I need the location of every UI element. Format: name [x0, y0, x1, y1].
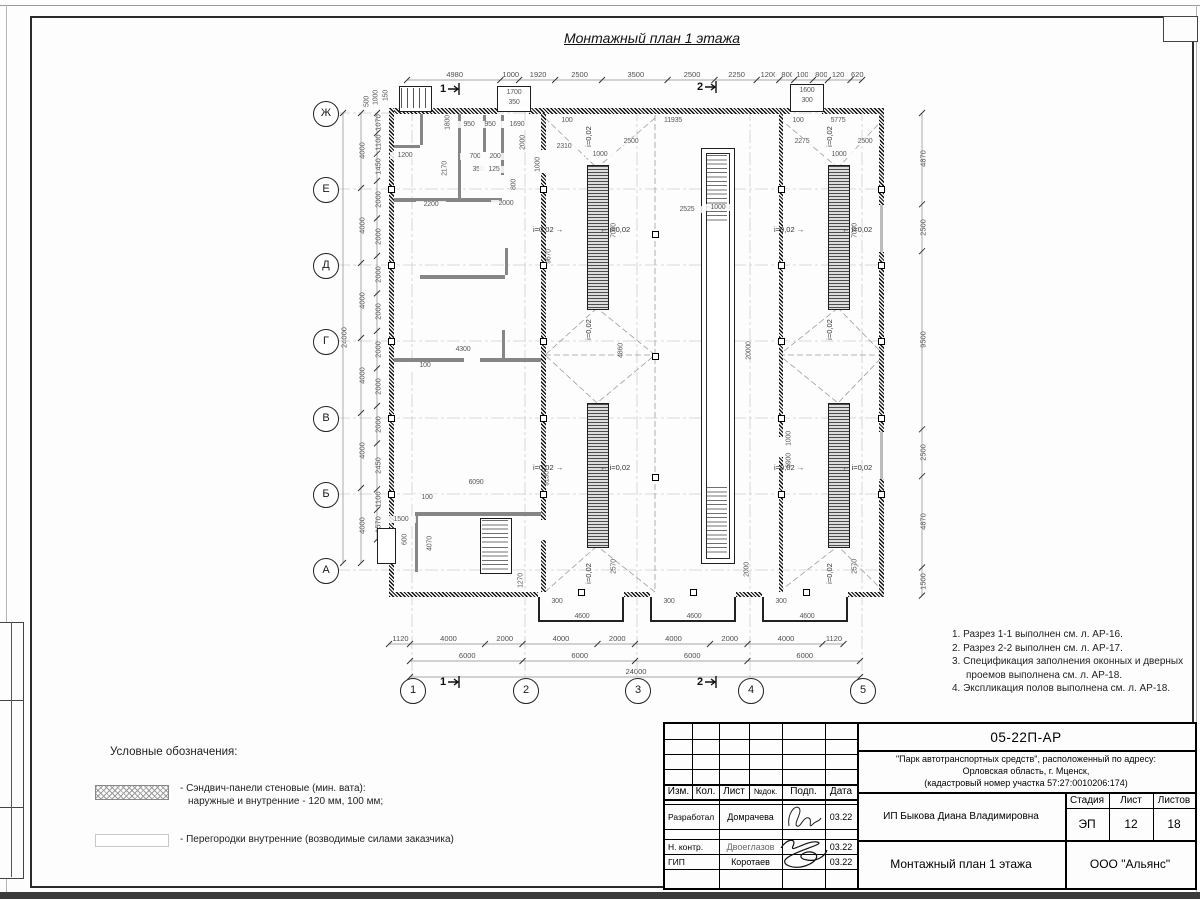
partition-wall [505, 248, 508, 275]
stamp-sheets-label: Листов [1153, 792, 1195, 808]
sandwich-panel-wall [541, 113, 546, 150]
dim-label: 125 [479, 166, 509, 173]
dim-label: 4600 [792, 613, 822, 620]
note-line: 4. Экспликация полов выполнена см. л. АР… [952, 682, 1200, 696]
section-mark: 1 [440, 675, 463, 689]
drawing-sheet: { "sheet": { "title": "Монтажный план 1 … [0, 0, 1200, 900]
sandwich-panel-wall [779, 113, 783, 437]
axis-bubble-row: Д [313, 253, 339, 279]
plan-outline [377, 528, 396, 564]
legend-swatch-sandwich-panel [95, 785, 169, 800]
column-marker [878, 338, 885, 345]
stair-treads [401, 88, 428, 108]
column-marker [540, 338, 547, 345]
note-line: 2. Разрез 2-2 выполнен см. л. АР-17. [952, 642, 1200, 656]
axis-bubble-col: 3 [625, 678, 651, 704]
axis-bubble-col: 4 [738, 678, 764, 704]
axis-bubble-col: 2 [513, 678, 539, 704]
dim-label: 2275 [787, 138, 817, 145]
sandwich-panel-wall [624, 592, 650, 597]
section-number: 1 [440, 83, 446, 95]
dim-label: 4070 [427, 529, 434, 559]
column-marker [778, 491, 785, 498]
partition-wall [420, 113, 423, 145]
stamp-name-ncontrol: Двоеглазов [719, 839, 782, 854]
sandwich-panel-wall [822, 108, 884, 114]
dim-label: 300 [542, 598, 572, 605]
dim-label: 150 [383, 81, 390, 111]
axis-bubble-col: 5 [850, 678, 876, 704]
stair-treads [482, 520, 508, 543]
stamp-stage-value: ЭП [1065, 808, 1109, 840]
stamp-client: ИП Быкова Диана Владимировна [857, 792, 1065, 840]
legend-line: наружные и внутренние - 120 мм, 100 мм; [180, 796, 480, 809]
dim-label: 350 [499, 99, 529, 106]
apron-line [622, 597, 624, 622]
apron-line [650, 597, 652, 622]
section-mark: 2 [697, 675, 720, 689]
slope-label: ← i=0,02 [600, 463, 630, 472]
dim-label: 300 [766, 598, 796, 605]
column-marker [690, 589, 697, 596]
column-marker [652, 474, 659, 481]
dim-label: 2310 [549, 143, 579, 150]
stamp-doc-code: 05-22П-АР [857, 724, 1195, 750]
ramp-strip [828, 403, 850, 548]
partition-wall [420, 275, 505, 279]
apron-line [538, 620, 624, 622]
project-line: (кадастровый номер участка 57:27:0010206… [924, 777, 1128, 789]
slope-label: i=0,02 [825, 319, 834, 340]
stamp-sheets-value: 18 [1153, 808, 1195, 840]
stamp-project: "Парк автотранспортных средств", располо… [857, 750, 1195, 792]
stamp-col-podp: Подп. [782, 784, 825, 799]
slope-label: ← i=0,02 [600, 225, 630, 234]
column-marker [652, 353, 659, 360]
stair-treads [707, 155, 727, 224]
stamp-org: ООО "Альянс" [1065, 840, 1195, 888]
sandwich-panel-wall [848, 592, 884, 597]
dim-label: 950 [475, 121, 505, 128]
column-marker [652, 231, 659, 238]
axis-bubble-row: В [313, 406, 339, 432]
column-marker [778, 415, 785, 422]
apron-line [650, 620, 736, 622]
section-arrow-icon [704, 675, 720, 689]
stamp-name-developer: Домрачева [719, 804, 782, 829]
axis-bubble-row: Е [313, 177, 339, 203]
slope-label: i=0,02 [584, 126, 593, 147]
column-marker [778, 262, 785, 269]
dim-label: 4600 [567, 613, 597, 620]
sandwich-panel-wall [541, 540, 546, 592]
apron-line [538, 597, 540, 622]
stamp-role-developer: Разработал [665, 804, 722, 829]
dim-label: 1270 [518, 566, 525, 596]
section-mark: 1 [440, 82, 463, 96]
legend-item-partition: - Перегородки внутренние (возводимые сил… [180, 834, 540, 847]
slope-label: i=0,02 [825, 126, 834, 147]
dim-label: 9670 [546, 242, 553, 272]
column-marker [540, 415, 547, 422]
sandwich-panel-wall [529, 108, 790, 114]
dim-label: 4600 [679, 613, 709, 620]
note-line: 1. Разрез 1-1 выполнен см. л. АР-16. [952, 628, 1200, 642]
column-marker [878, 186, 885, 193]
stamp-col-kol: Кол. [692, 784, 719, 799]
stamp-name-gip: Коротаев [719, 854, 782, 869]
partition-wall [415, 512, 541, 516]
signature-developer [783, 802, 825, 832]
slope-label: i=0,02 [584, 319, 593, 340]
stamp-col-data: Дата [825, 784, 857, 799]
dim-label: 200 [480, 153, 510, 160]
dim-label: 1800 [445, 108, 452, 138]
dim-label: 600 [402, 525, 409, 555]
dim-label: 2500 [616, 138, 646, 145]
apron-line [762, 597, 764, 622]
dim-label: 100 [410, 362, 440, 369]
dim-label: 1000 [824, 151, 854, 158]
slope-label: i=0,02 → [533, 225, 563, 234]
column-marker [803, 589, 810, 596]
section-number: 2 [697, 81, 703, 93]
stamp-date-developer: 03.22 [825, 804, 857, 829]
wall-opening [880, 432, 883, 479]
dim-label: 5775 [823, 117, 853, 124]
column-marker [388, 415, 395, 422]
plan-notes: 1. Разрез 1-1 выполнен см. л. АР-16. 2. … [952, 628, 1200, 696]
partition-wall [502, 330, 505, 358]
dim-label: 2000 [520, 128, 527, 158]
sandwich-panel-wall [389, 592, 538, 597]
partition-wall [480, 358, 541, 362]
stamp-role-ncontrol: Н. контр. [665, 839, 722, 854]
column-marker [540, 186, 547, 193]
dim-label: 500 [364, 87, 371, 117]
dim-label: 6090 [461, 479, 491, 486]
project-line: Орловская область, г. Мценск, [963, 765, 1090, 777]
dim-label: 1500 [386, 516, 416, 523]
section-arrow-icon [447, 675, 463, 689]
slope-label: ← i=0,02 [842, 463, 872, 472]
slope-label: i=0,02 [825, 563, 834, 584]
sandwich-panel-wall [779, 457, 783, 592]
section-mark: 2 [697, 80, 720, 94]
stamp-col-list: Лист [719, 784, 749, 799]
slope-label: i=0,02 → [774, 463, 804, 472]
legend-swatch-partition [95, 834, 169, 847]
legend-title: Условные обозначения: [110, 746, 237, 758]
legend-line: - Перегородки внутренние (возводимые сил… [180, 834, 540, 847]
dim-label: 1000 [585, 151, 615, 158]
axis-bubble-row: А [313, 558, 339, 584]
stamp-sheet-label: Лист [1109, 792, 1153, 808]
axis-bubble-col: 1 [400, 678, 426, 704]
dim-label: 2570 [852, 552, 859, 582]
stair-treads [482, 547, 508, 570]
stamp-drawing-title: Монтажный план 1 этажа [857, 840, 1065, 888]
column-marker [878, 491, 885, 498]
ramp-strip [828, 165, 850, 310]
dim-label: 1600 [792, 87, 822, 94]
dim-label: 2000 [491, 200, 521, 207]
column-marker [778, 186, 785, 193]
ramp-strip [587, 165, 609, 310]
stair-treads [707, 487, 727, 556]
stamp-col-izm: Изм. [665, 784, 692, 799]
apron-line [846, 597, 848, 622]
dim-label: 11935 [658, 117, 688, 124]
column-marker [388, 262, 395, 269]
dim-label: 100 [412, 494, 442, 501]
dim-label: 300 [654, 598, 684, 605]
stamp-date-gip: 03.22 [825, 854, 857, 869]
signature-gip [777, 836, 829, 872]
title-block: Изм. Кол. Лист №док. Подп. Дата Разработ… [663, 722, 1197, 890]
column-marker [388, 491, 395, 498]
apron-line [734, 597, 736, 622]
dim-label: 800 [511, 170, 518, 200]
dim-label: 1690 [502, 121, 532, 128]
legend-item-sandwich-panel: - Сэндвич-панели стеновые (мин. вата): н… [180, 783, 480, 808]
sandwich-panel-wall [389, 108, 394, 597]
section-number: 2 [697, 676, 703, 688]
stamp-date-ncontrol: 03.22 [825, 839, 857, 854]
dim-label: 100 [552, 117, 582, 124]
section-arrow-icon [704, 80, 720, 94]
project-line: "Парк автотранспортных средств", располо… [896, 753, 1156, 765]
axis-bubble-row: Г [313, 329, 339, 355]
dim-label: 300 [792, 97, 822, 104]
note-line: проемов выполнена см. л. АР-18. [952, 669, 1200, 683]
dim-label: 20000 [746, 336, 753, 366]
axis-bubble-row: Б [313, 482, 339, 508]
wall-opening [880, 205, 883, 252]
dim-label: 1000 [786, 424, 793, 454]
dim-label: 1700 [499, 89, 529, 96]
stamp-col-ndok: №док. [749, 784, 782, 799]
column-marker [878, 415, 885, 422]
column-marker [388, 186, 395, 193]
slope-label: ← i=0,02 [842, 225, 872, 234]
dim-label: 2000 [744, 555, 751, 585]
column-marker [578, 589, 585, 596]
dim-label: 2200 [416, 201, 446, 208]
column-marker [778, 338, 785, 345]
dim-label: 2570 [611, 552, 618, 582]
section-arrow-icon [447, 82, 463, 96]
slope-label: i=0,02 → [533, 463, 563, 472]
stamp-sheet-value: 12 [1109, 808, 1153, 840]
dim-label: 4300 [448, 346, 478, 353]
apron-line [762, 620, 848, 622]
column-marker [878, 262, 885, 269]
dim-label: 2525 [672, 206, 702, 213]
section-number: 1 [440, 676, 446, 688]
stamp-stage-label: Стадия [1065, 792, 1109, 808]
sandwich-panel-wall [736, 592, 762, 597]
slope-label: i=0,02 → [774, 225, 804, 234]
dim-label: 2170 [442, 154, 449, 184]
slope-label: i=0,02 [584, 563, 593, 584]
dim-label: 2500 [850, 138, 880, 145]
axis-bubble-row: Ж [313, 101, 339, 127]
column-marker [388, 338, 395, 345]
stamp-role-gip: ГИП [665, 854, 722, 869]
dim-label: 1000 [373, 83, 380, 113]
legend-line: - Сэндвич-панели стеновые (мин. вата): [180, 783, 480, 796]
dim-label: 1000 [703, 204, 733, 211]
ramp-strip [587, 403, 609, 548]
dim-label: 1000 [535, 150, 542, 180]
partition-wall [394, 198, 502, 202]
note-line: 3. Спецификация заполнения оконных и две… [952, 655, 1200, 669]
dim-label: 1200 [390, 152, 420, 159]
dim-label: 100 [783, 117, 813, 124]
dim-label: 4860 [618, 336, 625, 366]
